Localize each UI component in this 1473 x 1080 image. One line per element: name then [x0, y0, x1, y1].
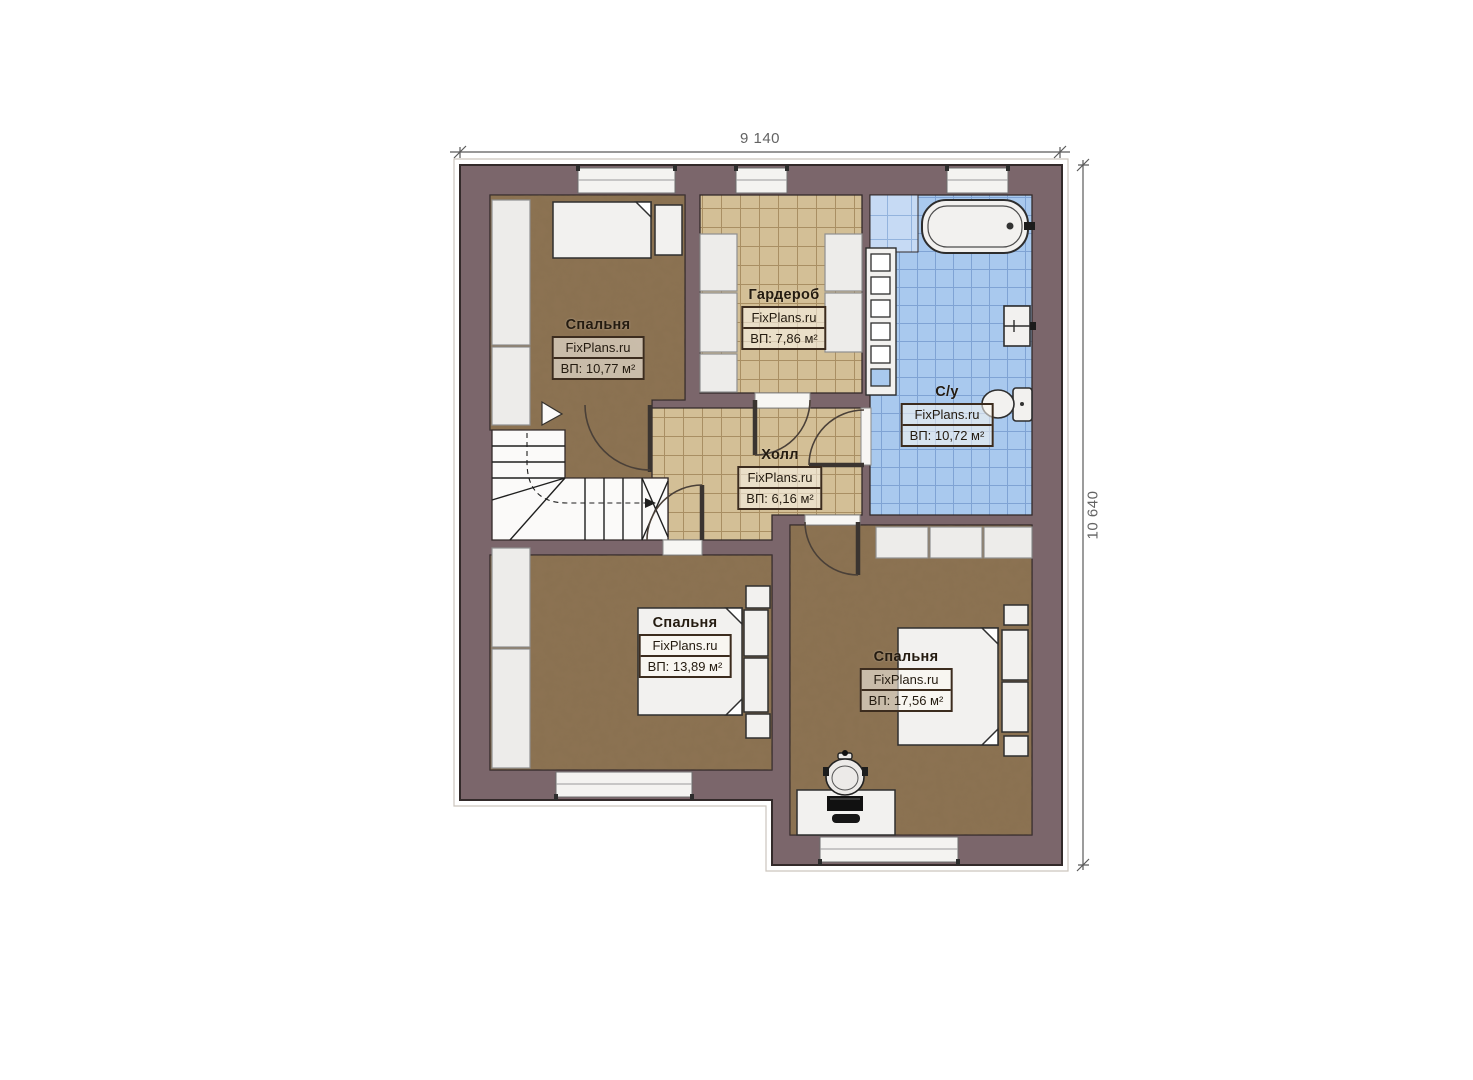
closet [825, 234, 862, 291]
opening-wardrobe [755, 393, 810, 408]
keyboard [832, 814, 860, 823]
watermark: FixPlans.ru [739, 468, 820, 487]
opening-bathroom [861, 408, 871, 465]
room-label-bedroom-3: Спальня FixPlans.ru ВП: 17,56 м² [860, 649, 953, 712]
room-info-box: FixPlans.ru ВП: 17,56 м² [860, 668, 953, 712]
closet [825, 293, 862, 352]
nightstand [1004, 605, 1028, 625]
room-info-box: FixPlans.ru ВП: 13,89 м² [639, 634, 732, 678]
room-area: ВП: 6,16 м² [739, 487, 820, 508]
room-area: ВП: 10,77 м² [554, 357, 643, 378]
room-name: Гардероб [741, 287, 826, 303]
pillow [1002, 682, 1028, 732]
floor-plan-canvas: 9 140 10 640 Спальня FixPlans.ru ВП: 10,… [0, 0, 1473, 1080]
closet [492, 548, 530, 647]
nightstand [746, 714, 770, 738]
nightstand [1004, 736, 1028, 756]
dimension-width-label: 9 140 [740, 130, 780, 147]
opening-bedroom-3 [805, 515, 860, 525]
closet [492, 649, 530, 768]
closet [700, 293, 737, 352]
room-label-hall: Холл FixPlans.ru ВП: 6,16 м² [737, 447, 822, 510]
pillow [1002, 630, 1028, 680]
room-area: ВП: 13,89 м² [641, 655, 730, 676]
pillow [744, 658, 768, 712]
closet [700, 234, 737, 291]
room-name: С/у [901, 384, 994, 400]
watermark: FixPlans.ru [554, 338, 643, 357]
dimension-height-label: 10 640 [1085, 491, 1102, 540]
shelf-unit [866, 248, 896, 395]
closet [700, 354, 737, 392]
bathtub [922, 200, 1035, 253]
room-name: Спальня [639, 615, 732, 631]
room-area: ВП: 10,72 м² [903, 424, 992, 445]
laptop [827, 796, 863, 811]
room-info-box: FixPlans.ru ВП: 6,16 м² [737, 466, 822, 510]
room-label-wardrobe: Гардероб FixPlans.ru ВП: 7,86 м² [741, 287, 826, 350]
bathtub-faucet [1024, 222, 1035, 230]
room-info-box: FixPlans.ru ВП: 10,77 м² [552, 336, 645, 380]
room-area: ВП: 17,56 м² [862, 689, 951, 710]
desk [797, 790, 895, 835]
closet [492, 200, 530, 345]
bed-bedroom-1 [553, 202, 682, 258]
nightstand [746, 586, 770, 608]
closet [492, 347, 530, 425]
watermark: FixPlans.ru [641, 636, 730, 655]
floor-bathroom-big-tiles [870, 195, 918, 252]
room-info-box: FixPlans.ru ВП: 10,72 м² [901, 403, 994, 447]
pillow [744, 610, 768, 656]
room-area: ВП: 7,86 м² [743, 327, 824, 348]
watermark: FixPlans.ru [743, 308, 824, 327]
opening-bedroom-2 [663, 540, 702, 555]
bathtub-drain [1007, 223, 1014, 230]
closet [876, 527, 928, 558]
floor-plan-drawing [0, 0, 1473, 1080]
room-label-bedroom-1: Спальня FixPlans.ru ВП: 10,77 м² [552, 317, 645, 380]
watermark: FixPlans.ru [903, 405, 992, 424]
closet [984, 527, 1032, 558]
closet [930, 527, 982, 558]
room-name: Спальня [860, 649, 953, 665]
room-name: Холл [737, 447, 822, 463]
room-name: Спальня [552, 317, 645, 333]
room-label-bedroom-2: Спальня FixPlans.ru ВП: 13,89 м² [639, 615, 732, 678]
watermark: FixPlans.ru [862, 670, 951, 689]
room-label-bathroom: С/у FixPlans.ru ВП: 10,72 м² [901, 384, 994, 447]
room-info-box: FixPlans.ru ВП: 7,86 м² [741, 306, 826, 350]
